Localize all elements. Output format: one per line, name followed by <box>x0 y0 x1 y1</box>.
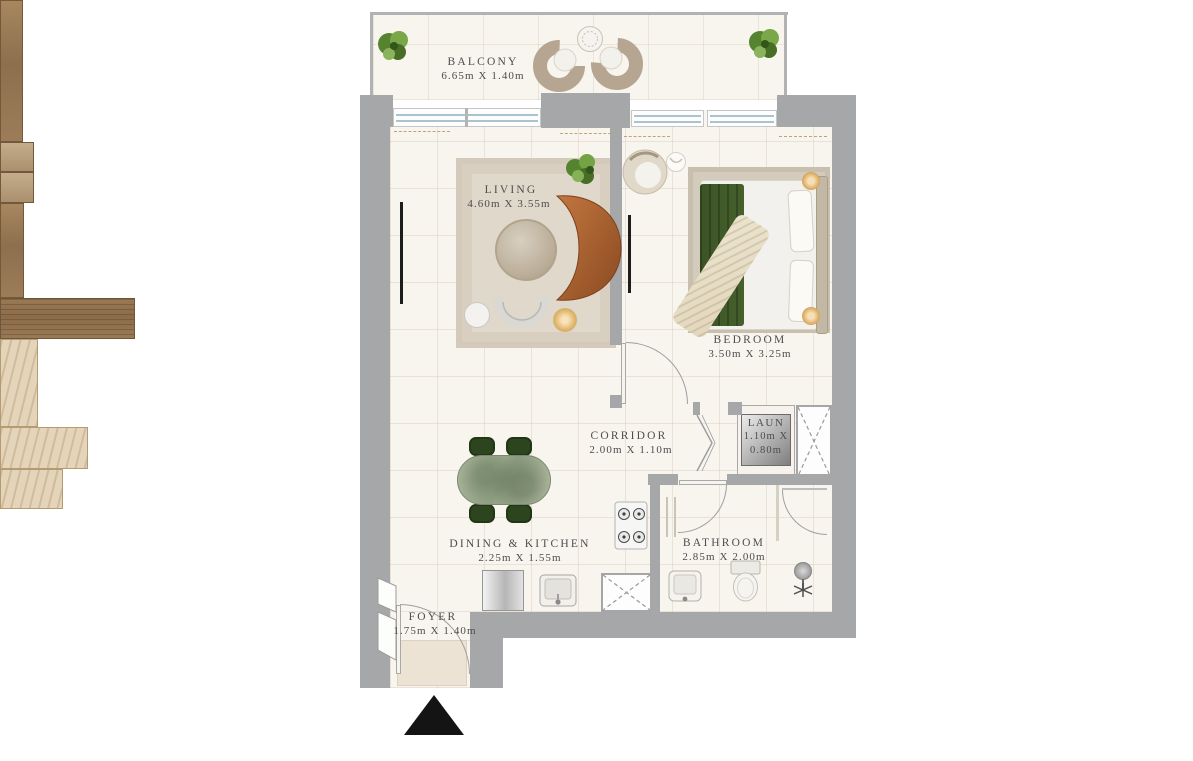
wall-kitchen-right <box>650 484 660 612</box>
wall-bottom <box>470 612 856 638</box>
living-tv-console <box>0 0 23 142</box>
towel-rail <box>666 497 676 537</box>
dining-chair <box>469 437 495 456</box>
window-glass-line <box>710 115 774 117</box>
shower-door-track <box>782 488 827 490</box>
laundry-jamb-right <box>728 402 742 415</box>
bedroom-window-1 <box>631 110 704 127</box>
window-mullion <box>465 108 468 127</box>
floor-lamp <box>553 308 577 332</box>
side-table <box>464 302 490 328</box>
laundry-dims-line2: 0.80m <box>750 445 782 456</box>
foyer-label: FOYER <box>409 611 458 623</box>
bathroom-vanity <box>0 469 63 509</box>
bedroom-door-leaf <box>621 343 626 404</box>
window-glass-line <box>710 121 774 123</box>
window-glass-line <box>634 121 701 123</box>
dining-chair <box>469 504 495 523</box>
wall-left <box>360 95 390 688</box>
entrance-marker-icon <box>404 695 464 735</box>
balcony-label: BALCONY <box>448 56 519 68</box>
dining-kitchen-dims: 2.25m X 1.55m <box>478 552 561 564</box>
bedroom-label: BEDROOM <box>714 334 787 346</box>
bathroom-door-leaf <box>679 480 727 485</box>
floor-plan: BALCONY 6.65m X 1.40m LIVING 4.60m X 3.5… <box>0 0 1193 761</box>
bathroom-dims: 2.85m X 2.00m <box>682 551 765 563</box>
living-tv <box>400 202 403 304</box>
bedroom-tv <box>628 215 631 293</box>
wall-right <box>832 95 856 638</box>
balcony-floor <box>373 15 787 100</box>
dining-kitchen-label: DINING & KITCHEN <box>449 538 590 550</box>
wall-foyer-corner <box>470 638 503 688</box>
corridor-label: CORRIDOR <box>590 430 667 442</box>
baseboard-hatch <box>394 131 450 132</box>
bedroom-window-2 <box>707 110 777 127</box>
dining-chair <box>506 504 532 523</box>
balcony-wall-right <box>784 12 787 100</box>
baseboard-hatch <box>560 133 616 134</box>
wall-bathroom-top-b <box>727 474 832 485</box>
laundry-label: LAUN <box>748 417 785 429</box>
bedroom-dims: 3.50m X 3.25m <box>708 348 791 360</box>
balcony-wall-left <box>370 12 373 100</box>
foyer-dims: 1.75m X 1.40m <box>393 625 476 637</box>
nightstand <box>0 172 34 203</box>
dining-chair <box>506 437 532 456</box>
nightstand <box>0 142 34 172</box>
corridor-dims: 2.00m X 1.10m <box>589 444 672 456</box>
bathroom-label: BATHROOM <box>683 537 765 549</box>
balcony-wall-top <box>370 12 788 15</box>
window-glass-line <box>634 115 701 117</box>
kitchen-shaft <box>601 573 652 612</box>
kitchen-counter-bottom <box>0 427 88 469</box>
table-lamp <box>802 172 820 190</box>
living-dims: 4.60m X 3.55m <box>467 198 550 210</box>
bed-pillow <box>787 189 814 252</box>
laundry-jamb-left <box>693 402 700 415</box>
baseboard-hatch <box>624 136 670 137</box>
living-label: LIVING <box>485 184 538 196</box>
wall-top-center-pier <box>541 93 630 128</box>
bedroom-tv-console <box>0 203 24 298</box>
wardrobe <box>0 298 135 339</box>
table-lamp <box>802 307 820 325</box>
entry-door-leaf <box>396 605 401 674</box>
baseboard-hatch <box>779 136 827 137</box>
kitchen-counter-vertical <box>0 339 38 427</box>
dining-table <box>457 455 551 505</box>
balcony-dims: 6.65m X 1.40m <box>441 70 524 82</box>
wall-bathroom-top-a <box>648 474 678 485</box>
laundry-dims-line1: 1.10m X <box>744 431 788 442</box>
shower-partition <box>776 483 779 541</box>
coffee-table <box>495 219 557 281</box>
fridge <box>482 570 524 611</box>
partition-living-bedroom <box>610 127 622 345</box>
service-shaft <box>796 405 832 478</box>
